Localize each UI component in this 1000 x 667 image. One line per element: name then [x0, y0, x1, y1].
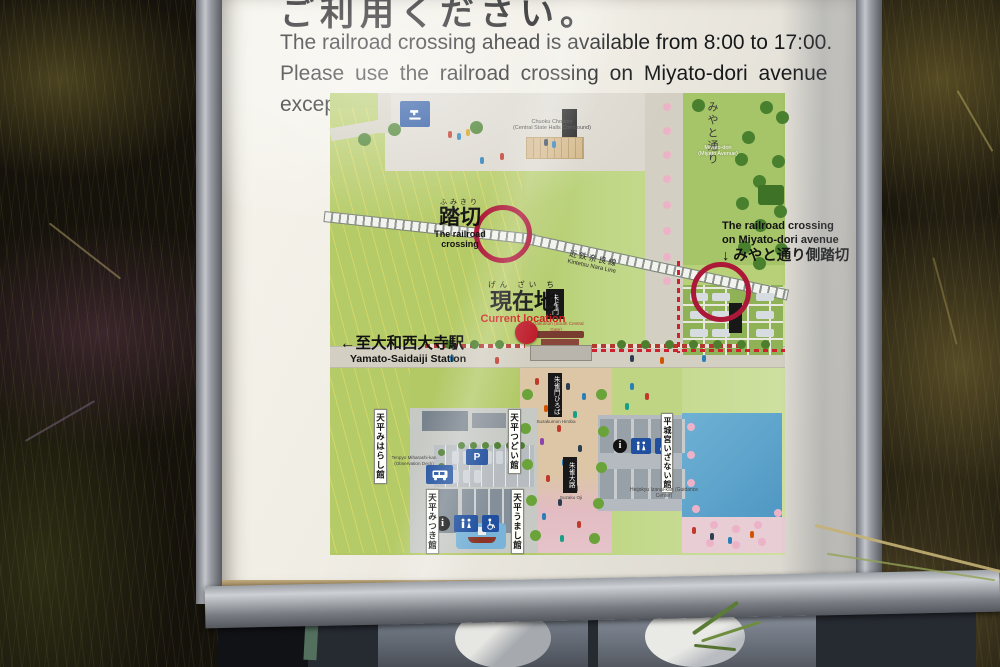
tree-icon [761, 340, 770, 349]
person-dot [566, 383, 570, 390]
park-tree-icon [774, 205, 787, 218]
suzakumon-square-text: 朱雀門ひろば [552, 376, 559, 415]
small-tree-icon [458, 442, 465, 449]
person-dot [645, 393, 649, 400]
tree-icon [470, 340, 479, 349]
small-tree-icon [482, 442, 489, 449]
cherry-tree-icon [774, 509, 782, 517]
sign-frame-right-post [856, 0, 882, 604]
crossing-en: The railroad crossing [418, 229, 502, 249]
cherry-tree-icon [732, 525, 740, 533]
drinking-fountain-icon [400, 101, 430, 127]
person-dot [750, 531, 754, 538]
cherry-tree-icon [663, 201, 671, 209]
kentoshi-ship [468, 537, 496, 543]
cherry-tree-icon [692, 505, 700, 513]
cherry-tree-icon [663, 253, 671, 261]
bus-stop-icon [426, 465, 453, 484]
park-tree-icon [776, 111, 789, 124]
miharashi-caption: Tenpyo Miharashi-kan (Observation Deck) [378, 455, 450, 466]
willow-tree-icon [522, 389, 533, 400]
person-dot [448, 131, 452, 138]
car-rect [452, 451, 459, 464]
suzakumon-gate-base [530, 345, 592, 361]
tree-icon [641, 340, 650, 349]
miyato-avenue-en2: (Miyato Avenue) [686, 151, 750, 157]
person-dot [582, 393, 586, 400]
car-rect [463, 470, 470, 483]
car-rect [756, 329, 774, 337]
info-letter: i [619, 440, 622, 451]
cherry-tree-icon [663, 277, 671, 285]
sign-frame-left-post [196, 0, 222, 604]
miyato-crossing-ring [691, 262, 751, 322]
small-tree-icon [494, 442, 501, 449]
park-map: P i i 朱雀門 Suzakumon (South Central Gate) [330, 93, 785, 555]
hedge [758, 185, 784, 205]
izanai-caption: Heijokyu Izanai-kan (Guidance Center) [624, 487, 704, 500]
cherry-tree-icon [663, 151, 671, 159]
wheelchair-icon [482, 515, 499, 532]
grass-blade [25, 400, 95, 442]
person-dot [710, 533, 714, 540]
tree-icon [689, 340, 698, 349]
person-dot [540, 438, 544, 445]
car-rect [690, 329, 708, 337]
miharashi-sign: 天平みはらし館 [374, 409, 387, 484]
park-tree-icon [470, 121, 483, 134]
car-rect [712, 329, 730, 337]
grass-blade [932, 257, 957, 344]
parking-icon: P [466, 449, 488, 465]
small-tree-icon [470, 442, 477, 449]
person-dot [625, 403, 629, 410]
person-dot [557, 425, 561, 432]
person-dot [728, 537, 732, 544]
station-jp: ←至大和西大寺駅 [340, 331, 466, 353]
cherry-tree-icon [663, 227, 671, 235]
grass-field [330, 351, 410, 553]
park-tree-icon [772, 155, 785, 168]
person-dot [692, 527, 696, 534]
crossing-label: ふみきり 踏切 The railroad crossing [418, 197, 502, 249]
person-dot [630, 383, 634, 390]
suzakumon-square-caption: Suzakumon Hiroba [530, 419, 582, 425]
willow-tree-icon [530, 530, 541, 541]
park-tree-icon [736, 197, 749, 210]
park-tree-icon [742, 131, 755, 144]
suzakumon-square-plaque: 朱雀門ひろば [548, 373, 562, 417]
person-dot [573, 411, 577, 418]
pond [682, 413, 782, 517]
sign-board: ご利用ください。 The railroad crossing ahead is … [220, 0, 858, 588]
route-dashed-horizontal [565, 349, 785, 352]
person-dot [630, 355, 634, 362]
person-dot [544, 139, 548, 146]
person-dot [466, 129, 470, 136]
car-rect [474, 470, 481, 483]
cherry-tree-icon [710, 521, 718, 529]
person-dot [535, 378, 539, 385]
restroom-icon [454, 515, 478, 532]
tree-icon [737, 340, 746, 349]
photo-of-sign: ご利用ください。 The railroad crossing ahead is … [0, 0, 1000, 667]
willow-tree-icon [589, 533, 600, 544]
person-dot [542, 513, 546, 520]
suzaku-avenue-plaque: 朱雀大路 [563, 457, 577, 493]
notice-line-2: Please use the railroad crossing on Miya… [280, 58, 846, 89]
tree-icon [495, 340, 504, 349]
willow-tree-icon [526, 495, 537, 506]
crossing-jp: 踏切 [418, 207, 502, 229]
car-rect [756, 293, 774, 301]
cherry-tree-icon [663, 103, 671, 111]
grass-blade [957, 90, 994, 152]
person-dot [560, 535, 564, 542]
car-rect [756, 311, 774, 319]
person-dot [457, 133, 461, 140]
suzakumon-gate-roof2 [541, 339, 579, 345]
parking-letter: P [474, 452, 481, 463]
willow-tree-icon [596, 389, 607, 400]
willow-tree-icon [598, 426, 609, 437]
person-dot [578, 445, 582, 452]
suzaku-avenue-text: 朱雀大路 [567, 462, 574, 488]
mitsuki-sign: 天平みつき館 [426, 489, 439, 554]
tree-icon [617, 340, 626, 349]
person-dot [546, 475, 550, 482]
person-dot [495, 357, 499, 364]
person-dot [552, 141, 556, 148]
chodoin-en2: (Central State Halls Compound) [496, 125, 608, 131]
willow-tree-icon [596, 462, 607, 473]
cherry-tree-icon [663, 127, 671, 135]
park-tree-icon [760, 101, 773, 114]
notice-line-1: The railroad crossing ahead is available… [280, 27, 846, 58]
willow-tree-icon [593, 498, 604, 509]
miharashi-building [422, 411, 468, 431]
car-rect [496, 451, 503, 464]
tsudoi-building [472, 413, 506, 428]
person-dot [660, 357, 664, 364]
current-en: Current location [466, 313, 580, 325]
station-en: Yamato-Saidaiji Station [340, 353, 466, 365]
cherry-tree-icon [663, 175, 671, 183]
person-dot [500, 153, 504, 160]
cherry-tree-icon [687, 479, 695, 487]
tree-icon [665, 340, 674, 349]
chodoin-label: Chuoku Chodoin (Central State Halls Comp… [496, 119, 608, 131]
willow-tree-icon [522, 459, 533, 470]
person-dot [480, 157, 484, 164]
info-icon: i [613, 439, 627, 453]
park-tree-icon [358, 133, 371, 146]
tsudoi-sign: 天平つどい館 [508, 409, 521, 474]
info-letter: i [441, 517, 444, 529]
route-dashed-vertical [677, 261, 680, 353]
umashi-sign: 天平うまし館 [511, 489, 524, 554]
person-dot [577, 521, 581, 528]
tree-icon [713, 340, 722, 349]
person-dot [702, 355, 706, 362]
restroom-icon [631, 438, 651, 454]
cherry-tree-icon [687, 451, 695, 459]
cherry-tree-icon [758, 538, 766, 546]
cherry-tree-icon [687, 423, 695, 431]
current-jp: 現在地 [466, 290, 580, 313]
cherry-tree-icon [754, 521, 762, 529]
suzaku-avenue-caption: Suzaku Oji [550, 495, 592, 501]
grass-blade [49, 223, 121, 280]
izanai-sign: 平城宮いざない館 [661, 413, 673, 493]
cherry-tree-icon [732, 541, 740, 549]
cherry-tree-icon [706, 539, 714, 547]
car-rect [452, 470, 459, 483]
miyato-avenue-en: Miyato-dori (Miyato Avenue) [686, 145, 750, 157]
station-label: ←至大和西大寺駅 Yamato-Saidaiji Station [340, 331, 466, 365]
current-location-label: げん ざい ち 現在地 Current location [466, 279, 580, 325]
